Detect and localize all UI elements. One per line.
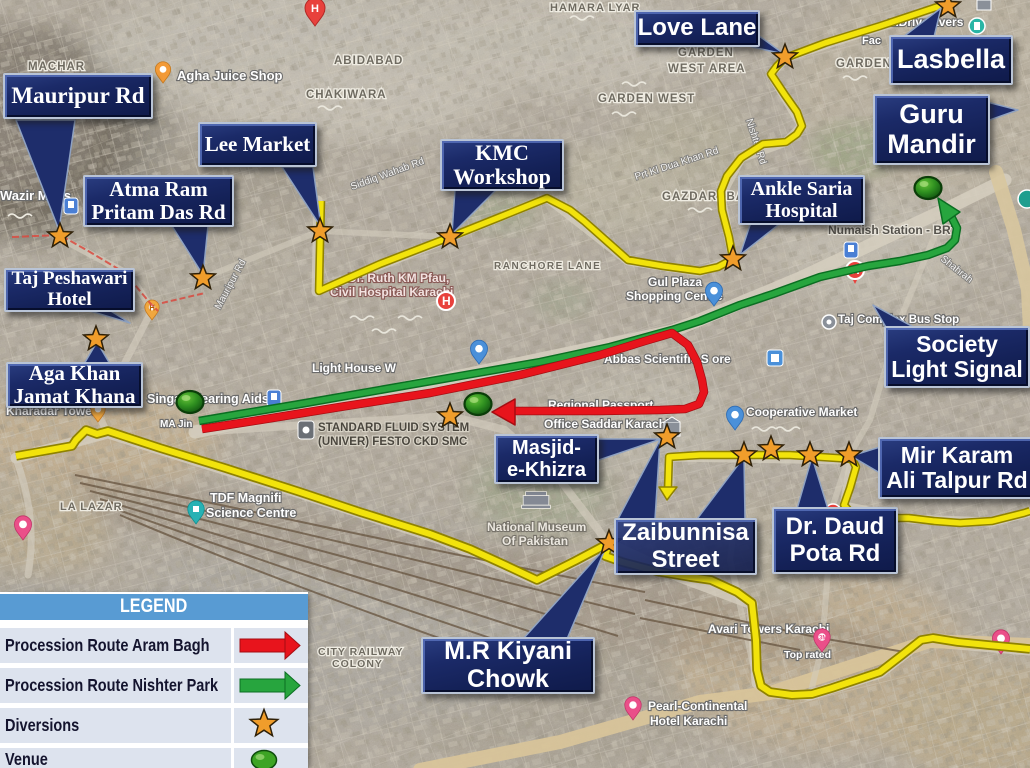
svg-text:National Museum: National Museum [487,520,586,534]
svg-text:Light House W: Light House W [312,361,397,375]
svg-text:Avari Towers Karachi: Avari Towers Karachi [708,622,829,636]
svg-text:ABIDABAD: ABIDABAD [334,55,403,67]
svg-text:Agha Juice Shop: Agha Juice Shop [177,68,283,83]
svg-text:Cooperative Market: Cooperative Market [746,405,857,419]
svg-text:Hotel Karachi: Hotel Karachi [650,714,727,728]
svg-text:H: H [442,294,451,308]
svg-text:(UNIVER) FESTO CKD SMC: (UNIVER) FESTO CKD SMC [318,436,467,448]
svg-text:HAMARA LYAR: HAMARA LYAR [550,2,640,14]
svg-text:Civil Hospital Karachi: Civil Hospital Karachi [330,285,453,299]
svg-text:GARDEN WEST: GARDEN WEST [598,93,695,105]
svg-text:COLONY: COLONY [332,658,383,670]
svg-text:3M: 3M [819,635,827,641]
svg-text:GARDEN: GARDEN [678,47,734,59]
svg-text:Office Saddar Karachi: Office Saddar Karachi [544,417,669,431]
svg-text:TDF Magnifi: TDF Magnifi [210,491,282,505]
svg-text:MACHAR: MACHAR [28,61,85,73]
svg-text:Singap Hearing Aids: Singap Hearing Aids [147,392,269,406]
svg-text:Numaish Station - BRT: Numaish Station - BRT [828,223,959,237]
svg-text:Gul Plaza: Gul Plaza [648,275,702,289]
svg-text:Fac: Fac [862,35,881,47]
svg-text:H: H [311,3,319,15]
svg-text:Pearl-Continental: Pearl-Continental [648,699,747,713]
svg-text:Top rated: Top rated [784,649,831,661]
svg-text:WEST AREA: WEST AREA [668,63,746,75]
svg-text:Of Pakistan: Of Pakistan [502,534,568,548]
svg-text:Abbas Scientific S ore: Abbas Scientific S ore [604,352,731,366]
svg-text:CHAKIWARA: CHAKIWARA [306,89,387,101]
svg-text:Science Centre: Science Centre [206,506,296,520]
svg-text:RANCHORE LANE: RANCHORE LANE [494,261,601,272]
svg-text:MA Jin: MA Jin [160,419,192,430]
svg-text:LA LAZAR: LA LAZAR [60,501,123,513]
svg-text:CITY RAILWAY: CITY RAILWAY [318,646,404,658]
